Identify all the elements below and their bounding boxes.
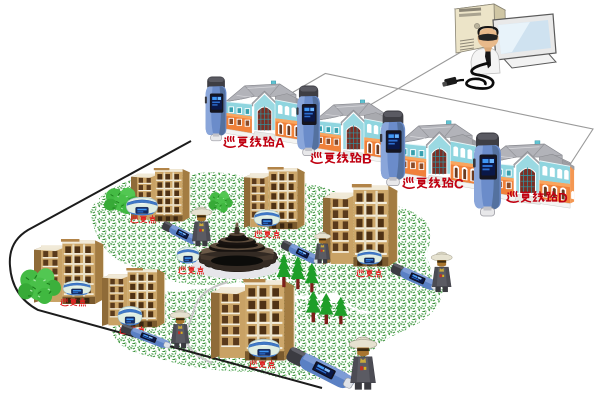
svg-text:D: D <box>558 191 568 206</box>
svg-text:A: A <box>275 136 285 151</box>
svg-text:C: C <box>454 177 464 192</box>
svg-text:B: B <box>362 152 372 167</box>
